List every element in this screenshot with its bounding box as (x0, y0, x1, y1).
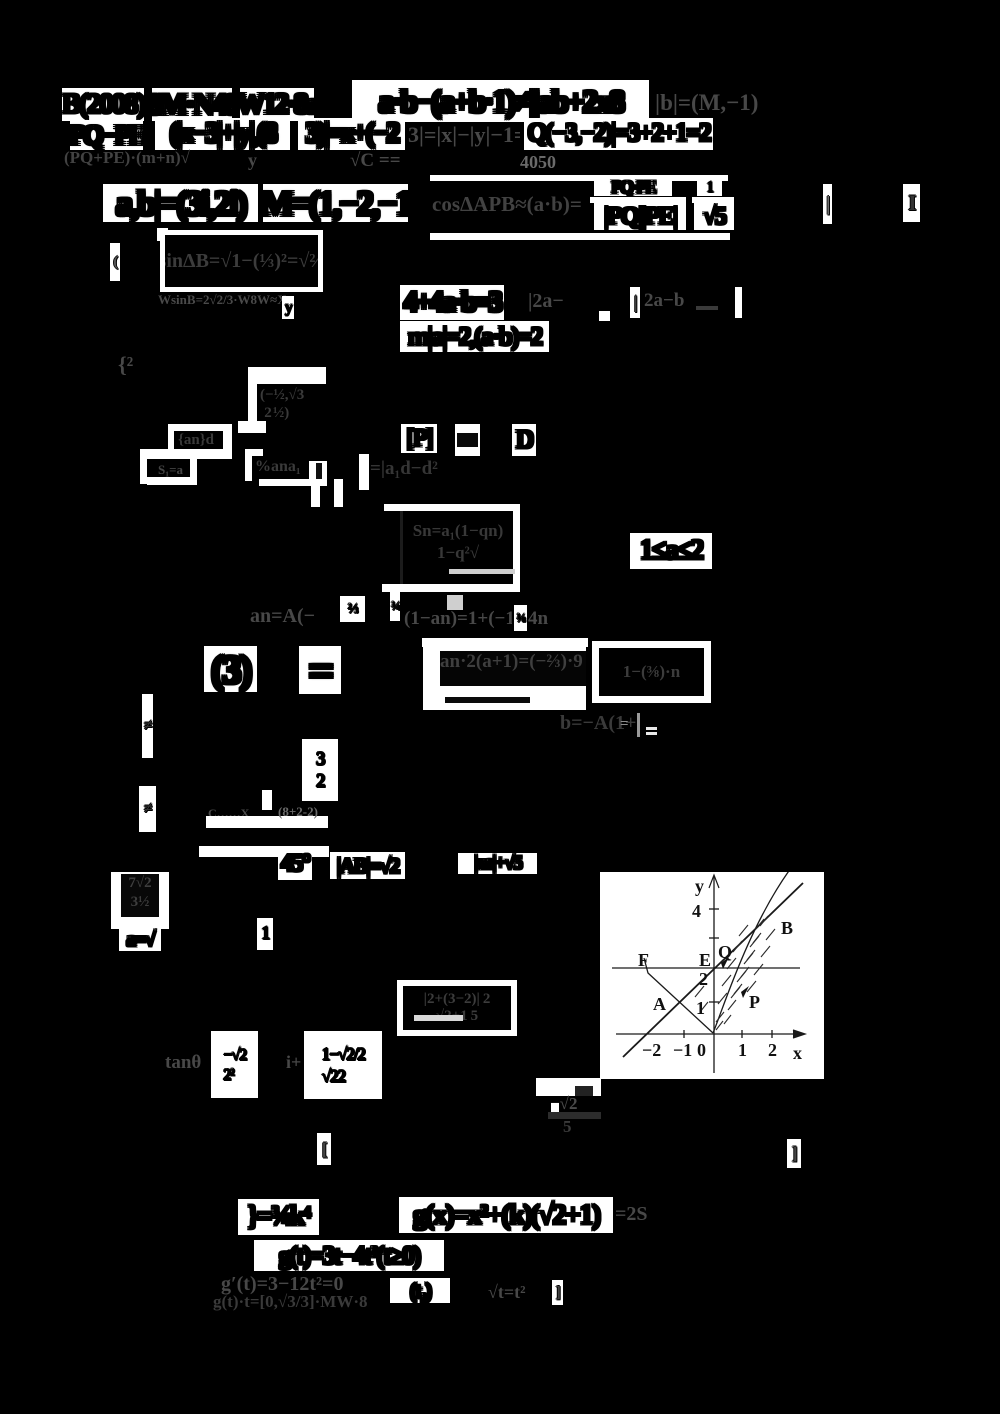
svg-text:P: P (749, 992, 760, 1012)
svg-text:B: B (781, 918, 793, 938)
svg-text:−1: −1 (673, 1040, 692, 1060)
svg-text:1: 1 (738, 1040, 747, 1060)
svg-text:E: E (699, 950, 711, 970)
svg-text:x: x (793, 1043, 802, 1063)
svg-text:F: F (638, 950, 649, 970)
svg-text:Q: Q (718, 942, 732, 962)
svg-text:−2: −2 (642, 1040, 661, 1060)
svg-text:4: 4 (692, 901, 701, 921)
svg-text:A: A (653, 994, 666, 1014)
svg-text:2: 2 (768, 1040, 777, 1060)
svg-text:y: y (695, 876, 704, 896)
svg-text:2: 2 (699, 969, 708, 989)
svg-text:1: 1 (696, 998, 705, 1018)
svg-text:0: 0 (697, 1040, 706, 1060)
